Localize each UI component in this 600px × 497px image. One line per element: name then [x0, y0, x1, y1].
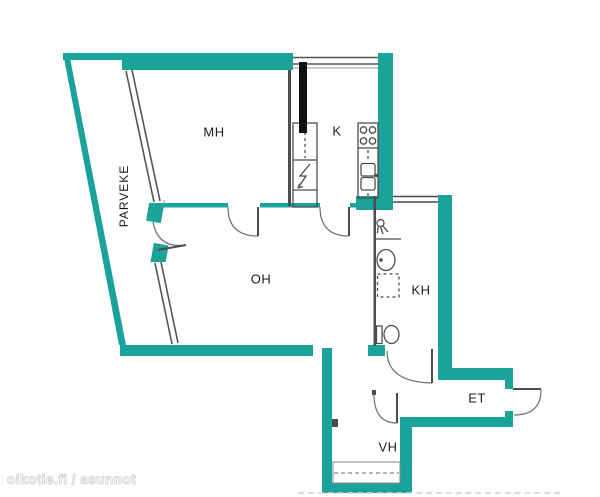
living-bathroom-wall	[374, 196, 377, 346]
closet-fixtures	[333, 462, 400, 483]
entry-top-wall	[438, 368, 513, 380]
shower-icon	[377, 220, 388, 235]
room-label-entry: ET	[468, 391, 486, 406]
closet-door-frame-stub	[332, 419, 338, 427]
sink-icon	[361, 164, 378, 191]
washer-space	[378, 274, 400, 297]
kitchen-right-wall	[378, 53, 393, 210]
balcony-door-arc	[153, 222, 186, 246]
entry-door-top-stub	[505, 380, 513, 389]
room-label-bedroom: MH	[203, 125, 224, 140]
toilet-icon	[377, 326, 400, 344]
stove-icon	[358, 127, 378, 148]
closet-right-wall	[400, 417, 412, 493]
flue-bar	[299, 62, 307, 133]
living-window-opening	[151, 262, 183, 345]
bathroom-door-arc	[387, 351, 432, 383]
entry-bottom-wall	[400, 417, 513, 427]
kitchen-counter-left	[293, 123, 317, 207]
closet-left-wall	[322, 348, 332, 493]
watermark: oikotie.fi / asunnot	[7, 472, 136, 487]
living-bottom-wall	[120, 345, 313, 356]
entrance-door-arc	[514, 390, 541, 415]
room-label-kitchen: K	[332, 124, 341, 139]
balcony-top-wall	[63, 53, 124, 60]
room-label-living: OH	[251, 272, 272, 287]
balcony-door-bottom-block	[150, 243, 168, 265]
hall-wall-right	[350, 203, 360, 208]
bedroom-kitchen-wall	[288, 70, 291, 206]
bathroom-bottom-stub	[368, 345, 385, 356]
bathroom-fixtures	[375, 220, 401, 344]
hall-wall-left	[152, 203, 228, 208]
bedroom-door-arc	[228, 207, 258, 236]
floor-plan-drawing	[0, 0, 600, 497]
kitchen-door-arc	[320, 207, 349, 236]
closet-door-arc	[374, 394, 397, 423]
room-label-bathroom: KH	[411, 283, 430, 298]
top-wall	[122, 53, 293, 70]
floor-plan: PARVEKE MH K OH KH ET VH oikotie.fi / as…	[0, 0, 600, 497]
washbasin-icon	[377, 250, 395, 271]
cropped-text-artifact	[298, 492, 560, 497]
room-label-balcony: PARVEKE	[117, 165, 131, 228]
room-label-closet: VH	[378, 440, 397, 455]
windows	[122, 55, 378, 345]
bathroom-right-wall	[438, 195, 452, 380]
